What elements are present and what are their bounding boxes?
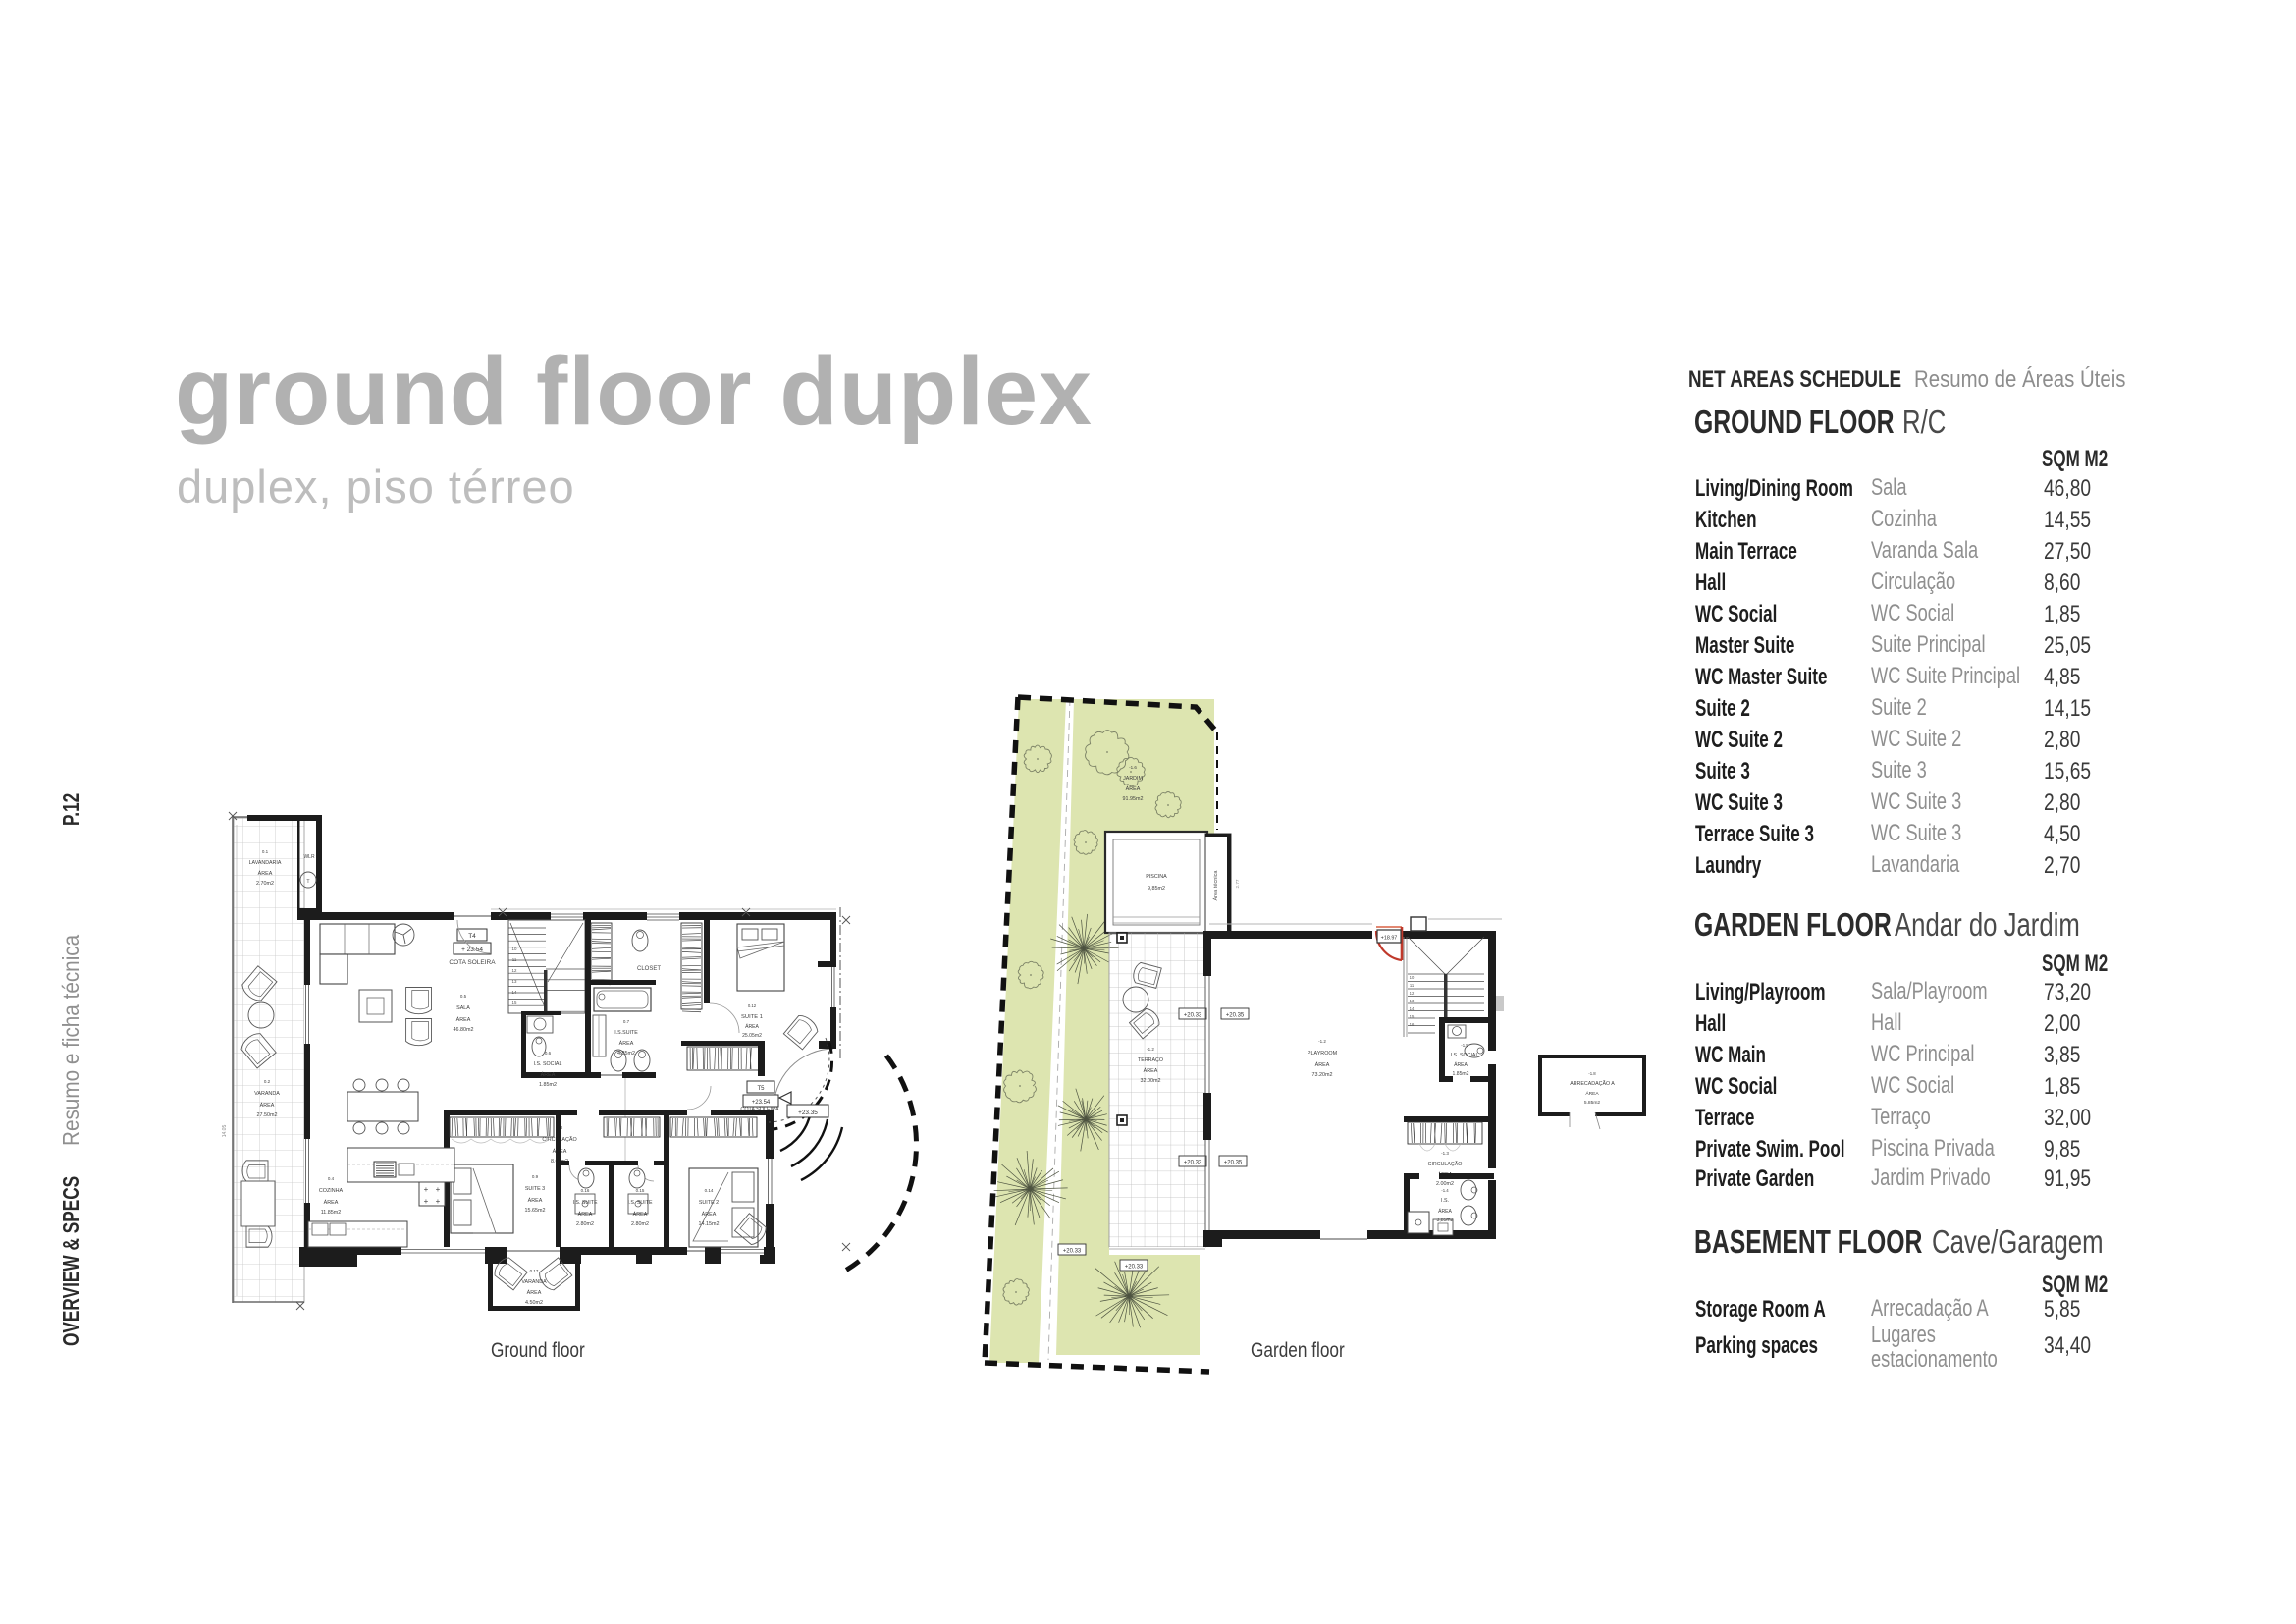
svg-text:ÁREA: ÁREA (633, 1211, 648, 1218)
svg-text:0.5: 0.5 (460, 994, 467, 999)
svg-text:27.50m2: 27.50m2 (257, 1112, 278, 1118)
svg-text:1.85m2: 1.85m2 (539, 1082, 557, 1088)
svg-text:3,85m2: 3,85m2 (1437, 1218, 1454, 1223)
svg-text:46.80m2: 46.80m2 (454, 1027, 474, 1033)
svg-text:ÁREA: ÁREA (1315, 1061, 1330, 1068)
svg-text:COTA SOLEIRA: COTA SOLEIRA (449, 959, 496, 966)
svg-text:T4: T4 (468, 933, 476, 940)
svg-text:ARRECADAÇÃO A: ARRECADAÇÃO A (1570, 1080, 1615, 1087)
svg-text:+18.97: +18.97 (1381, 936, 1398, 942)
svg-text:0.16: 0.16 (581, 1188, 590, 1193)
svg-text:0.6: 0.6 (545, 1051, 552, 1056)
svg-text:ÁREA: ÁREA (702, 1211, 717, 1218)
svg-text:ÁREA: ÁREA (324, 1199, 339, 1206)
svg-text:+: + (436, 1197, 441, 1206)
svg-text:CIRCULAÇÃO: CIRCULAÇÃO (1428, 1161, 1463, 1167)
svg-text:91.95m2: 91.95m2 (1123, 796, 1144, 802)
svg-text:0.2: 0.2 (264, 1079, 271, 1084)
svg-text:0.4: 0.4 (328, 1176, 335, 1181)
svg-text:+: + (436, 1185, 441, 1194)
svg-text:+20.33: +20.33 (1184, 1161, 1202, 1166)
svg-text:9,85m2: 9,85m2 (1148, 886, 1165, 892)
svg-text:1.85m2: 1.85m2 (1453, 1071, 1469, 1077)
svg-text:32.00m2: 32.00m2 (1141, 1078, 1161, 1084)
svg-text:25.05m2: 25.05m2 (742, 1033, 762, 1039)
svg-text:ÁREA: ÁREA (527, 1289, 542, 1296)
svg-text:ÁREA: ÁREA (1126, 785, 1141, 792)
svg-text:I.S. SUITE: I.S. SUITE (572, 1200, 597, 1206)
svg-text:ÁREA: ÁREA (456, 1016, 471, 1023)
svg-text:-1.3: -1.3 (1441, 1151, 1449, 1156)
svg-text:LAVANDARIA: LAVANDARIA (249, 860, 282, 866)
svg-text:13: 13 (1410, 999, 1415, 1003)
svg-text:SUITE 3: SUITE 3 (525, 1186, 545, 1192)
svg-text:0.1: 0.1 (262, 849, 269, 854)
svg-text:-1.8: -1.8 (1588, 1071, 1596, 1076)
svg-text:ÁREA: ÁREA (528, 1197, 543, 1204)
svg-text:0.7: 0.7 (623, 1019, 630, 1024)
svg-text:10: 10 (1410, 975, 1415, 980)
svg-text:11: 11 (512, 957, 517, 962)
svg-text:-1.5: -1.5 (1461, 1043, 1468, 1048)
svg-text:PLAYROOM: PLAYROOM (1308, 1051, 1338, 1056)
svg-text:0.12: 0.12 (748, 1003, 757, 1008)
svg-text:ÁREA: ÁREA (1144, 1067, 1158, 1074)
svg-text:+: + (424, 1185, 429, 1194)
svg-text:+: + (424, 1197, 429, 1206)
svg-text:+20.33: +20.33 (1184, 1013, 1202, 1019)
svg-text:14.05: 14.05 (222, 1125, 228, 1138)
svg-text:ÁREA: ÁREA (1454, 1061, 1468, 1068)
svg-text:2.80m2: 2.80m2 (576, 1221, 594, 1227)
svg-text:+20.35: +20.35 (1224, 1161, 1243, 1166)
svg-text:2.80m2: 2.80m2 (631, 1221, 649, 1227)
svg-text:11: 11 (1410, 983, 1415, 988)
svg-text:I.S. SUITE: I.S. SUITE (627, 1200, 652, 1206)
svg-text:-1.4: -1.4 (1441, 1188, 1449, 1193)
svg-text:-1.2: -1.2 (1318, 1039, 1326, 1044)
svg-text:-1.2: -1.2 (1147, 1047, 1154, 1052)
svg-text:ÁREA: ÁREA (619, 1040, 634, 1047)
svg-text:I.S.: I.S. (1441, 1198, 1449, 1204)
svg-text:I.S. SOCIAL: I.S. SOCIAL (1451, 1053, 1479, 1058)
svg-text:ÁREA: ÁREA (260, 1102, 275, 1109)
svg-text:WLR: WLR (303, 854, 315, 860)
svg-text:CLOSET: CLOSET (637, 966, 661, 972)
svg-text:SUITE 2: SUITE 2 (699, 1200, 719, 1206)
svg-text:4.50m2: 4.50m2 (525, 1300, 543, 1306)
svg-text:+20.33: +20.33 (1125, 1265, 1144, 1271)
svg-text:5.85m2: 5.85m2 (1584, 1100, 1601, 1106)
svg-text:ÁREA: ÁREA (1438, 1208, 1452, 1215)
svg-text:15.65m2: 15.65m2 (525, 1208, 546, 1214)
svg-text:13: 13 (512, 979, 517, 984)
svg-text:ÁREA: ÁREA (1585, 1090, 1599, 1097)
svg-text:ÁREA: ÁREA (578, 1211, 593, 1218)
svg-text:Área técnica: Área técnica (1212, 870, 1219, 901)
svg-text:4.85m2: 4.85m2 (617, 1051, 635, 1056)
svg-text:-1.6: -1.6 (1129, 765, 1137, 770)
svg-text:SUITE 1: SUITE 1 (741, 1014, 763, 1020)
svg-text:73.20m2: 73.20m2 (1312, 1072, 1333, 1078)
svg-text:I.S. SOCIAL: I.S. SOCIAL (534, 1061, 562, 1067)
svg-text:16: 16 (1410, 1022, 1415, 1027)
svg-text:2.77: 2.77 (1235, 879, 1240, 888)
svg-text:0.9: 0.9 (532, 1174, 539, 1179)
svg-text:12: 12 (512, 968, 517, 973)
svg-text:VARANDA: VARANDA (254, 1091, 280, 1097)
svg-text:0.14: 0.14 (705, 1188, 714, 1193)
svg-text:JARDIM: JARDIM (1123, 776, 1143, 782)
svg-text:PISCINA: PISCINA (1146, 874, 1167, 880)
svg-text:SALA: SALA (456, 1005, 470, 1011)
svg-text:11.85m2: 11.85m2 (321, 1210, 342, 1216)
svg-text:ÁREA: ÁREA (541, 1071, 556, 1078)
svg-text:12: 12 (1410, 991, 1415, 996)
svg-text:0.15: 0.15 (636, 1188, 645, 1193)
svg-text:14.15m2: 14.15m2 (699, 1221, 720, 1227)
svg-text:TERRAÇO: TERRAÇO (1138, 1057, 1163, 1063)
svg-text:10: 10 (512, 947, 517, 951)
svg-text:15: 15 (512, 1001, 517, 1005)
svg-text:14: 14 (512, 990, 517, 995)
svg-text:+20.35: +20.35 (1226, 1013, 1245, 1019)
svg-text:15: 15 (1410, 1014, 1415, 1019)
svg-text:T5: T5 (757, 1086, 765, 1092)
svg-text:+23.54: +23.54 (752, 1100, 771, 1106)
svg-text:+23.35: +23.35 (798, 1110, 818, 1116)
svg-text:ÁREA: ÁREA (258, 870, 273, 877)
svg-text:2.00m2: 2.00m2 (1436, 1181, 1454, 1187)
svg-text:+20.33: +20.33 (1063, 1249, 1082, 1255)
svg-text:2.70m2: 2.70m2 (256, 881, 274, 887)
svg-text:14: 14 (1410, 1006, 1415, 1011)
svg-text:I.S.SUITE: I.S.SUITE (614, 1030, 638, 1036)
svg-text:COZINHA: COZINHA (319, 1188, 344, 1194)
svg-text:ÁREA: ÁREA (745, 1023, 759, 1030)
svg-text:0.17: 0.17 (530, 1269, 539, 1273)
svg-text:VARANDA: VARANDA (521, 1279, 547, 1285)
svg-text:T: T (306, 879, 310, 885)
